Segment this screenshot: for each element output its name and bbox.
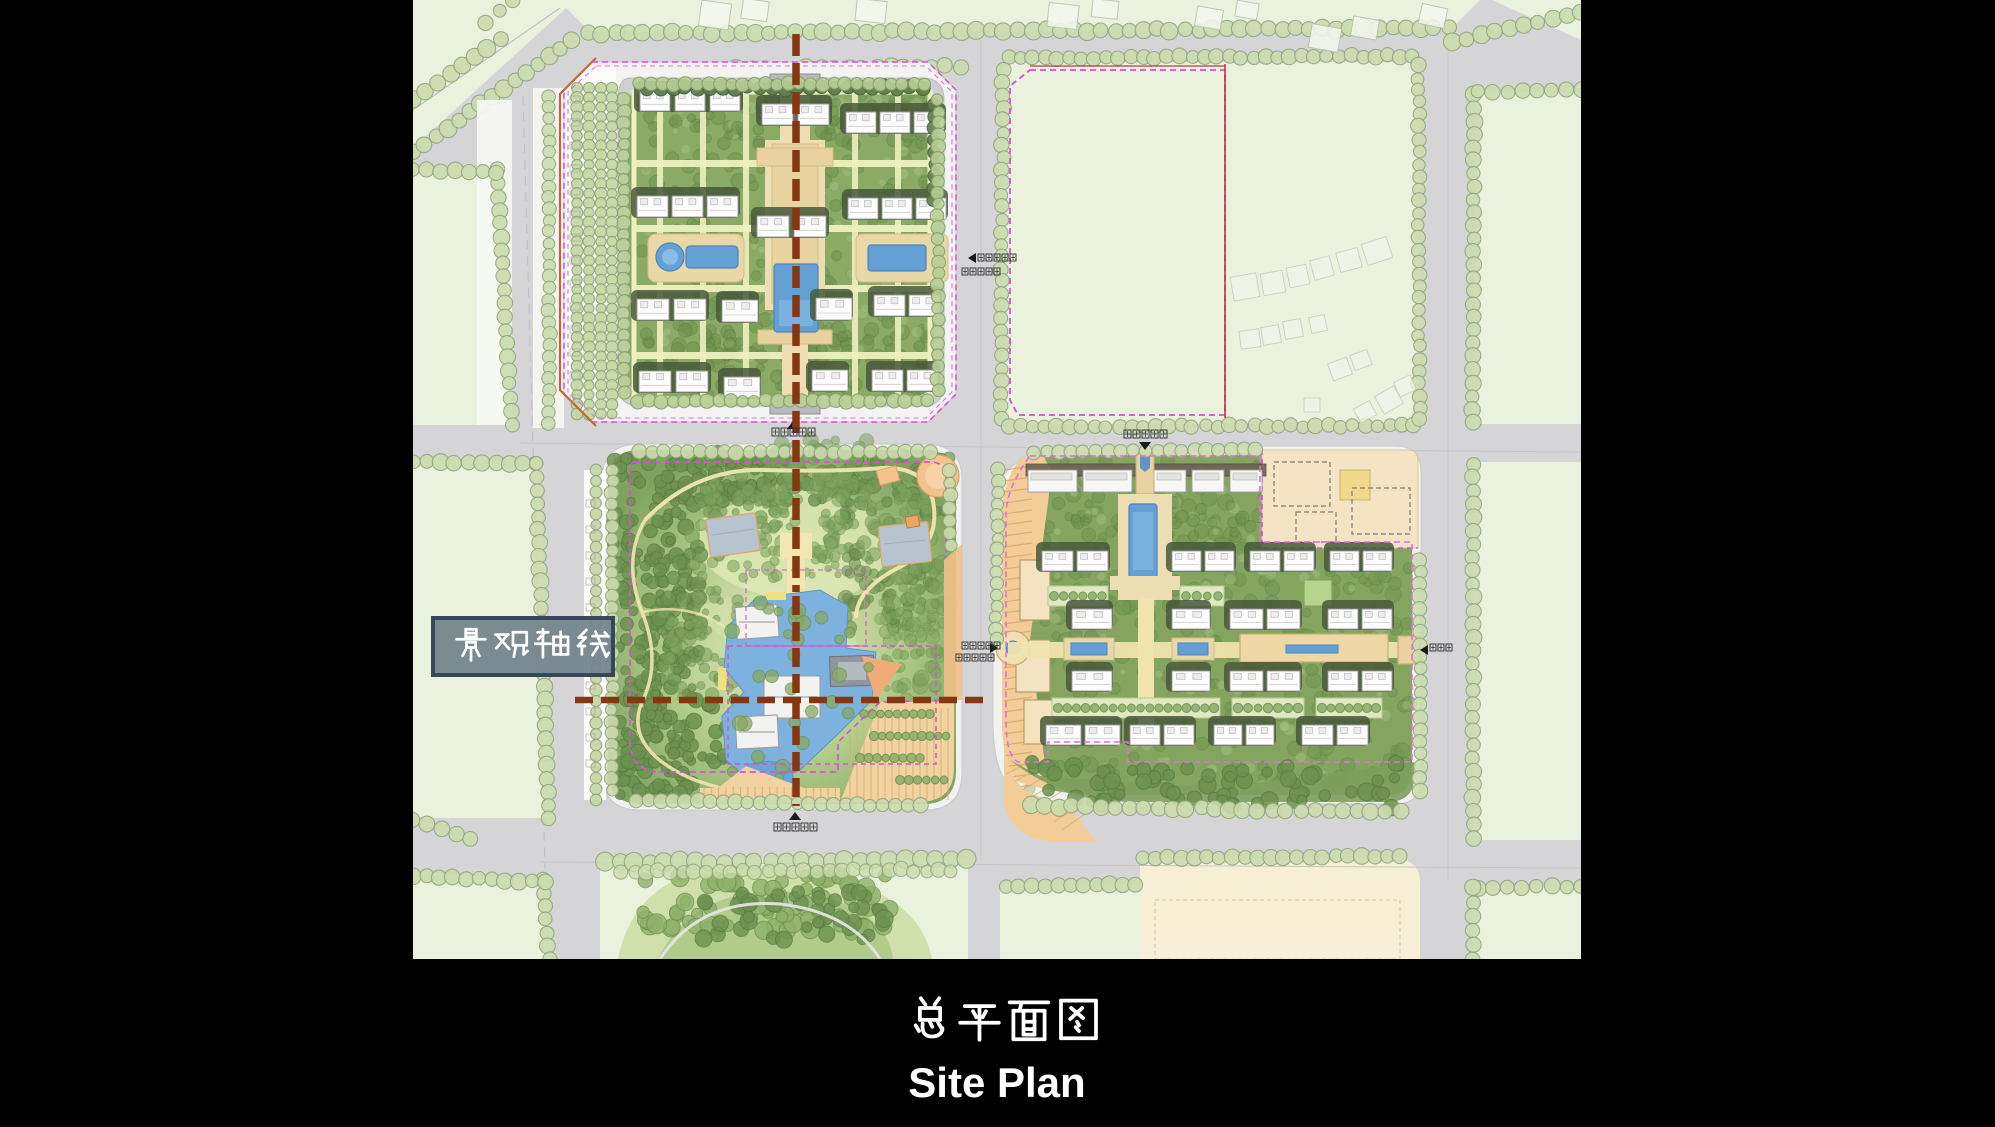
svg-text:Site Plan: Site Plan (908, 1059, 1085, 1106)
